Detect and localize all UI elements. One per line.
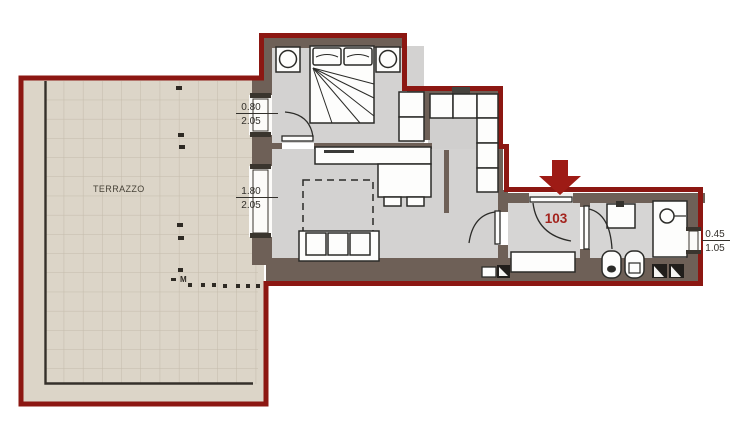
sink (607, 204, 635, 228)
entrance-door-leaf (530, 197, 572, 202)
room-number-label: 103 (545, 211, 568, 226)
toilet-detail (607, 266, 616, 273)
toilet (602, 251, 621, 278)
svg-text:1.05: 1.05 (705, 243, 725, 254)
svg-text:0.45: 0.45 (705, 229, 725, 240)
floor-plan-page: TERRAZZO M (0, 0, 731, 438)
sideboard-handle (324, 150, 354, 153)
sink-tap-icon (616, 201, 624, 207)
terrace-openings (249, 93, 272, 238)
wardrobe-cell-1 (399, 92, 424, 117)
lamp-left-icon (280, 51, 297, 68)
svg-text:2.05: 2.05 (241, 116, 261, 127)
terrace-marker-label: M (180, 275, 187, 284)
cabinet-right-2 (477, 143, 498, 168)
svg-text:0.80: 0.80 (241, 102, 261, 113)
sofa-cushion-3 (350, 233, 370, 255)
terrace-label: TERRAZZO (93, 184, 145, 194)
bedroom-door-leaf (282, 136, 313, 141)
cabinet-right-1 (477, 118, 498, 143)
bidet (625, 251, 644, 278)
cabinet-top-3 (477, 94, 498, 118)
hall-cabinet (511, 252, 575, 272)
cabinet-top-2 (453, 94, 477, 118)
chair-1 (384, 197, 401, 206)
wardrobe-cell-2 (399, 117, 424, 141)
bedroom-terrace-door (249, 93, 272, 137)
living-hall-door-leaf (495, 211, 500, 244)
dining-table (378, 164, 431, 197)
floor-plan: TERRAZZO M (0, 0, 731, 438)
terrace-tile-grid (45, 81, 258, 384)
svg-text:1.80: 1.80 (241, 186, 261, 197)
lamp-right-icon (380, 51, 397, 68)
cabinet-right-3 (477, 168, 498, 192)
svg-text:2.05: 2.05 (241, 200, 261, 211)
hall-bath-door-leaf (584, 206, 589, 249)
terrace: TERRAZZO M (23, 80, 264, 402)
sideboard (315, 147, 431, 164)
chair-2 (407, 197, 424, 206)
cabinet-top-1 (430, 94, 453, 118)
bottom-wall-elements (482, 265, 510, 278)
sofa-cushion-1 (306, 233, 326, 255)
niche-box (482, 267, 496, 277)
sofa-cushion-2 (328, 233, 348, 255)
bathroom-window (686, 227, 701, 254)
